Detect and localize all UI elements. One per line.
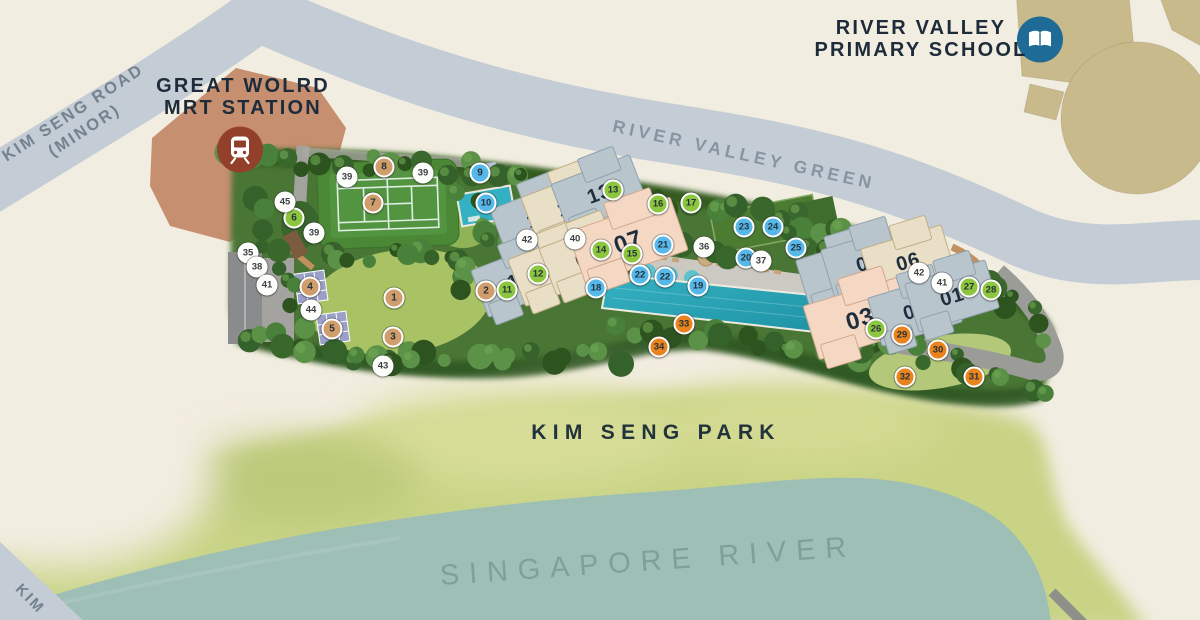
tree-highlight xyxy=(404,352,412,360)
marker-26: 26 xyxy=(866,319,887,340)
mrt-station-label: GREAT WOLRD MRT STATION xyxy=(156,75,330,119)
marker-29: 29 xyxy=(892,325,913,346)
tree-highlight xyxy=(280,150,289,159)
marker-33: 33 xyxy=(674,314,695,335)
tree xyxy=(251,326,268,343)
school-label-line2: PRIMARY SCHOOL xyxy=(814,39,1027,61)
tree xyxy=(438,354,451,367)
tree-highlight xyxy=(1029,302,1035,308)
park-label: KIM SENG PARK xyxy=(531,421,781,445)
tree-highlight xyxy=(490,166,500,176)
tree xyxy=(751,340,767,356)
tree xyxy=(339,253,354,268)
marker-42: 42 xyxy=(517,230,538,251)
marker-5: 5 xyxy=(322,319,343,340)
marker-39: 39 xyxy=(337,167,358,188)
tree-highlight xyxy=(524,344,532,352)
marker-41: 41 xyxy=(257,275,278,296)
marker-10: 10 xyxy=(476,193,497,214)
marker-23: 23 xyxy=(734,217,755,238)
marker-8: 8 xyxy=(374,157,395,178)
tree-highlight xyxy=(440,167,449,176)
tree-highlight xyxy=(457,259,466,268)
tree-highlight xyxy=(993,370,1001,378)
tree-highlight xyxy=(591,344,599,352)
marker-1: 1 xyxy=(384,288,405,309)
tree xyxy=(1028,300,1042,314)
marker-30: 30 xyxy=(928,340,949,361)
tree xyxy=(267,239,291,263)
tree xyxy=(402,350,420,368)
tree xyxy=(363,255,376,268)
tree xyxy=(270,334,295,359)
school-label-line1: RIVER VALLEY xyxy=(814,17,1027,39)
marker-3: 3 xyxy=(383,327,404,348)
tree-highlight xyxy=(399,158,406,165)
marker-13: 13 xyxy=(603,180,624,201)
tree-highlight xyxy=(643,322,654,333)
tree xyxy=(293,162,308,177)
marker-4: 4 xyxy=(300,277,321,298)
tree-highlight xyxy=(310,155,320,165)
tree xyxy=(487,164,510,187)
tree-highlight xyxy=(832,220,842,230)
marker-39: 39 xyxy=(413,163,434,184)
tree xyxy=(1037,385,1054,402)
mrt-station-label-line1: GREAT WOLRD xyxy=(156,75,330,97)
marker-21: 21 xyxy=(653,235,674,256)
tree-highlight xyxy=(1039,387,1047,395)
tree-highlight xyxy=(515,169,521,175)
tree xyxy=(397,156,412,171)
marker-25: 25 xyxy=(786,238,807,259)
tree-highlight xyxy=(608,318,617,327)
marker-45: 45 xyxy=(275,192,296,213)
mrt-train-icon xyxy=(217,127,263,178)
marker-32: 32 xyxy=(895,367,916,388)
tree xyxy=(277,148,297,168)
marker-28: 28 xyxy=(981,280,1002,301)
tree-highlight xyxy=(726,196,737,207)
tree-highlight xyxy=(482,234,489,241)
marker-16: 16 xyxy=(648,194,669,215)
tree-highlight xyxy=(350,348,357,355)
tree xyxy=(272,261,286,275)
tree-highlight xyxy=(791,204,800,213)
marker-11: 11 xyxy=(497,280,518,301)
tree xyxy=(589,342,608,361)
tree xyxy=(499,348,515,364)
marker-44: 44 xyxy=(301,300,322,321)
tree-highlight xyxy=(1025,382,1035,392)
tree xyxy=(294,317,316,339)
marker-41: 41 xyxy=(932,273,953,294)
tree xyxy=(784,340,803,359)
school-label: RIVER VALLEY PRIMARY SCHOOL xyxy=(814,17,1027,61)
tree xyxy=(424,250,439,265)
tree-highlight xyxy=(1007,291,1013,297)
tree xyxy=(348,347,365,364)
tree xyxy=(608,351,634,377)
tree-highlight xyxy=(240,332,251,343)
tree xyxy=(451,280,471,300)
marker-36: 36 xyxy=(694,237,715,258)
tree-highlight xyxy=(282,274,289,281)
marker-18: 18 xyxy=(586,278,607,299)
marker-39: 39 xyxy=(304,223,325,244)
tree xyxy=(552,348,571,367)
marker-40: 40 xyxy=(565,229,586,250)
tree xyxy=(708,323,732,347)
marker-15: 15 xyxy=(622,244,643,265)
marker-34: 34 xyxy=(649,337,670,358)
marker-22: 22 xyxy=(655,267,676,288)
tree xyxy=(1029,314,1048,333)
marker-12: 12 xyxy=(528,264,549,285)
tree xyxy=(576,344,589,357)
marker-42: 42 xyxy=(909,263,930,284)
tree xyxy=(397,243,419,265)
mrt-station-label-line2: MRT STATION xyxy=(156,97,330,119)
tree-highlight xyxy=(485,346,493,354)
marker-17: 17 xyxy=(681,193,702,214)
lawn-shadow xyxy=(180,440,420,520)
tree-highlight xyxy=(786,342,795,351)
marker-2: 2 xyxy=(476,281,497,302)
marker-7: 7 xyxy=(363,193,384,214)
tree xyxy=(514,168,527,181)
tree xyxy=(448,184,465,201)
marker-31: 31 xyxy=(964,367,985,388)
marker-9: 9 xyxy=(470,163,491,184)
tree xyxy=(308,152,331,175)
tree xyxy=(322,339,347,364)
tree-highlight xyxy=(391,244,397,250)
tree xyxy=(480,232,495,247)
marker-19: 19 xyxy=(688,276,709,297)
tree xyxy=(915,355,930,370)
tree xyxy=(522,342,539,359)
tree xyxy=(724,194,748,218)
marker-27: 27 xyxy=(959,277,980,298)
tree-highlight xyxy=(952,349,958,355)
marker-24: 24 xyxy=(763,217,784,238)
tree xyxy=(252,219,273,240)
marker-22: 22 xyxy=(630,265,651,286)
tree xyxy=(1036,333,1051,348)
tree-highlight xyxy=(334,157,344,167)
marker-37: 37 xyxy=(751,251,772,272)
marker-43: 43 xyxy=(373,356,394,377)
tree-highlight xyxy=(296,343,306,353)
site-plan-map: 11121310090807040506030201 GREAT WOLRD M… xyxy=(0,0,1200,620)
marker-14: 14 xyxy=(591,240,612,261)
tree xyxy=(282,298,297,313)
tree xyxy=(293,341,316,364)
tree-highlight xyxy=(449,186,457,194)
tree xyxy=(438,165,458,185)
tree xyxy=(991,368,1009,386)
tree-highlight xyxy=(463,153,472,162)
tree xyxy=(254,198,274,218)
tree xyxy=(606,316,625,335)
